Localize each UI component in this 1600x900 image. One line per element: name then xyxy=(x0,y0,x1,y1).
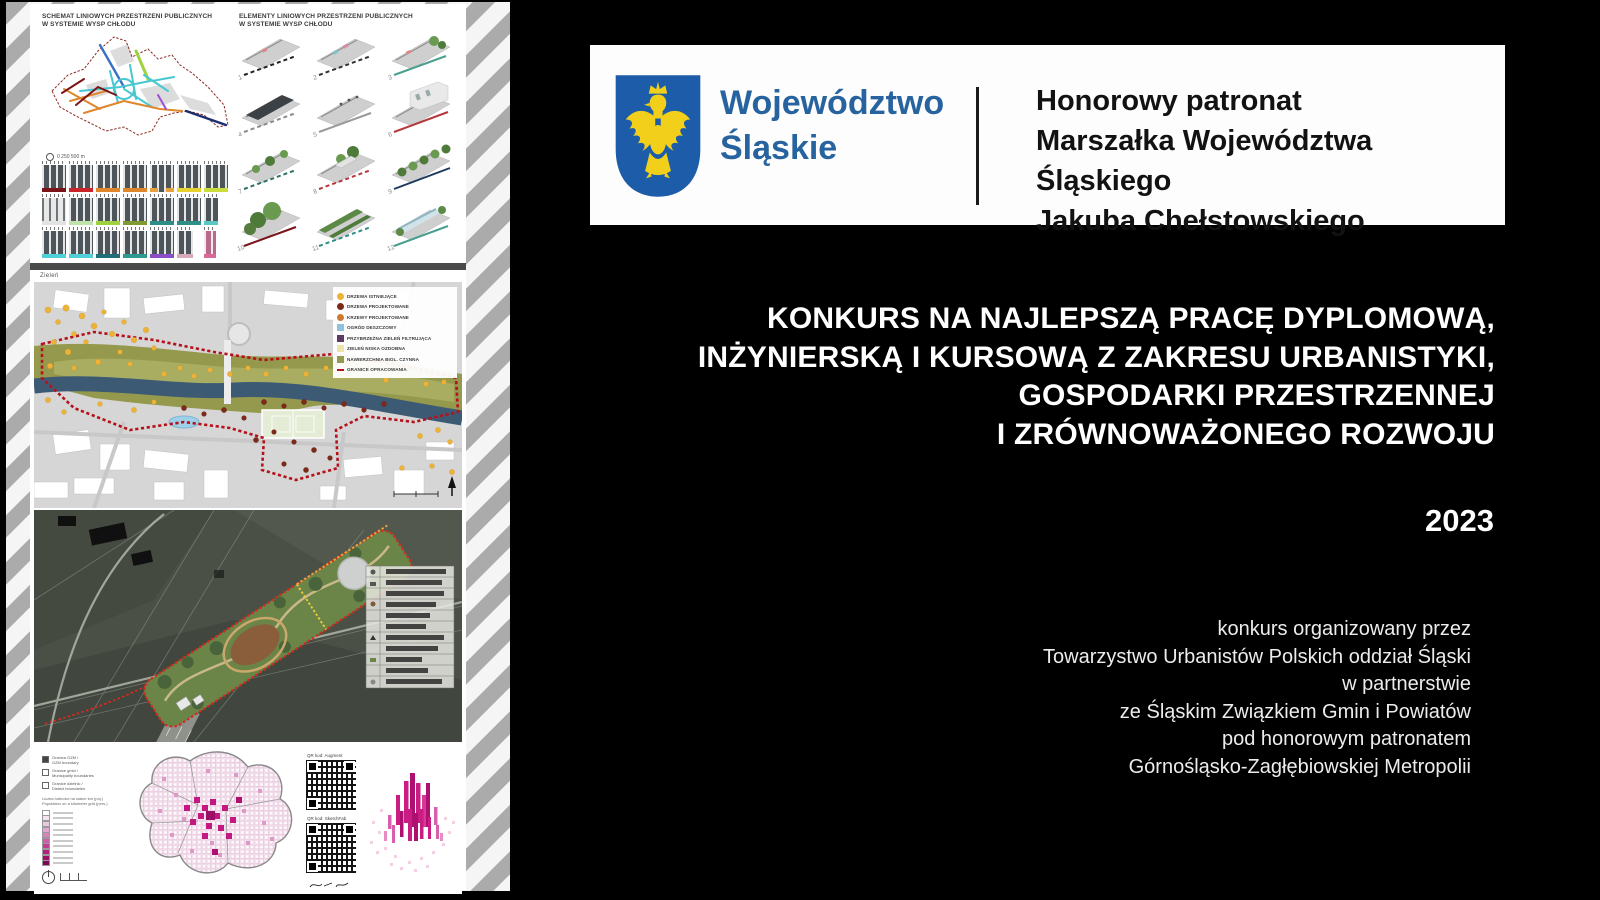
density-3d-bars xyxy=(364,751,459,886)
sports-field xyxy=(262,410,324,438)
high-3d-bars xyxy=(384,773,443,843)
svg-text:3: 3 xyxy=(387,74,393,82)
svg-text:6: 6 xyxy=(387,131,393,139)
slide: SCHEMAT LINIOWYCH PRZESTRZENI PUBLICZNYC… xyxy=(0,0,1600,900)
svg-text:7: 7 xyxy=(237,188,243,196)
cross-section xyxy=(123,198,147,225)
legend-checkbox xyxy=(42,769,49,776)
legend-swatch xyxy=(337,356,344,363)
cross-section xyxy=(123,165,147,192)
cross-section xyxy=(177,198,201,225)
legend-swatch xyxy=(337,314,344,321)
cross-section xyxy=(42,165,66,192)
legend-swatch xyxy=(337,369,344,371)
element-1: 1 xyxy=(237,39,300,82)
cross-section xyxy=(123,231,147,258)
poster3-legend-table xyxy=(366,566,454,688)
element-10: 10 xyxy=(236,202,300,253)
city-network-map xyxy=(40,31,232,151)
cross-section xyxy=(204,231,216,258)
poster-riverside-greenery: Zieleń xyxy=(34,271,462,508)
poster1-scale-text: 0 250 500 m xyxy=(57,154,85,160)
compass-and-scale xyxy=(42,871,134,884)
cross-section xyxy=(96,165,120,192)
legend-swatch xyxy=(337,335,344,342)
poster-collage-background: SCHEMAT LINIOWYCH PRZESTRZENI PUBLICZNYC… xyxy=(6,2,510,891)
poster2-label: Zieleń xyxy=(40,273,59,279)
legend-checkbox xyxy=(42,756,49,763)
element-12: 12 xyxy=(386,206,450,253)
cross-section xyxy=(42,198,66,225)
silesia-coat-of-arms xyxy=(612,71,704,201)
legend-swatch xyxy=(337,345,344,352)
poster2-legend: DRZEWA ISTNIEJĄCE DRZEWA PROJEKTOWANE KR… xyxy=(333,287,457,378)
banner-divider xyxy=(976,87,979,205)
poster-aerial-park xyxy=(34,510,462,742)
qr-code-sketchfab xyxy=(306,823,356,873)
cross-section xyxy=(69,198,93,225)
compass-icon xyxy=(42,871,55,884)
svg-text:8: 8 xyxy=(312,188,318,196)
cross-section xyxy=(150,231,174,258)
scalebar-icon xyxy=(60,873,87,881)
poster-divider xyxy=(30,263,466,270)
aerial-park-map xyxy=(34,510,462,742)
svg-text:2: 2 xyxy=(312,74,318,82)
cross-section xyxy=(150,198,174,225)
element-4: 4 xyxy=(237,95,300,139)
legend-checkbox xyxy=(42,782,49,789)
cross-section xyxy=(96,231,120,258)
street-cross-sections xyxy=(42,165,228,258)
street-elements-grid: 1 2 3 xyxy=(236,25,460,257)
cross-section xyxy=(96,198,120,225)
edition-year: 2023 xyxy=(1425,503,1494,539)
cross-section xyxy=(69,231,93,258)
svg-text:5: 5 xyxy=(312,131,318,139)
patronage-banner: WojewództwoŚląskie Honorowy patronat Mar… xyxy=(590,45,1505,225)
legend-swatch xyxy=(337,324,344,331)
cross-section xyxy=(177,231,193,258)
poster-cool-islands: SCHEMAT LINIOWYCH PRZESTRZENI PUBLICZNYC… xyxy=(34,7,462,262)
element-6: 6 xyxy=(387,82,450,139)
svg-text:4: 4 xyxy=(237,131,243,139)
cross-section xyxy=(69,165,93,192)
legend-swatch xyxy=(337,303,344,310)
svg-text:9: 9 xyxy=(387,188,393,196)
density-choropleth-map xyxy=(130,749,300,889)
cross-section xyxy=(204,165,228,192)
poster-column: SCHEMAT LINIOWYCH PRZESTRZENI PUBLICZNYC… xyxy=(30,4,466,890)
element-7: 7 xyxy=(237,150,300,196)
poster-population-density: Granica GZM / GZM boundary Granice gmin … xyxy=(34,745,462,894)
cross-section xyxy=(204,198,218,225)
legend-note: Liczba ludności na siatce km (poj.)Popul… xyxy=(42,796,134,806)
slide-title: KONKURS NA NAJLEPSZĄ PRACĘ DYPLOMOWĄ, IN… xyxy=(545,300,1495,454)
poster1-scalebar: 0 250 500 m xyxy=(46,153,85,161)
city-outline xyxy=(52,37,228,135)
element-8: 8 xyxy=(312,146,375,196)
cross-section xyxy=(150,165,174,192)
svg-text:1: 1 xyxy=(237,74,243,82)
qr-code-augment xyxy=(306,760,356,810)
poster4-legend: Granica GZM / GZM boundary Granice gmin … xyxy=(42,755,134,884)
element-5: 5 xyxy=(312,96,375,139)
patronage-text: Honorowy patronat Marszałka Województwa … xyxy=(1036,81,1505,241)
cross-section xyxy=(177,165,201,192)
density-swatch xyxy=(42,860,50,866)
roundabout xyxy=(228,323,250,345)
signature xyxy=(306,879,354,894)
element-3: 3 xyxy=(387,36,450,82)
poster1-left-header: SCHEMAT LINIOWYCH PRZESTRZENI PUBLICZNYC… xyxy=(42,13,232,29)
organizers-text: konkurs organizowany przez Towarzystwo U… xyxy=(871,616,1471,781)
scale-icon xyxy=(46,153,54,161)
legend-swatch xyxy=(337,293,344,300)
element-11: 11 xyxy=(311,209,375,253)
cross-section xyxy=(42,231,66,258)
element-9: 9 xyxy=(387,145,450,196)
region-name: WojewództwoŚląskie xyxy=(720,81,944,171)
element-2: 2 xyxy=(312,39,375,82)
